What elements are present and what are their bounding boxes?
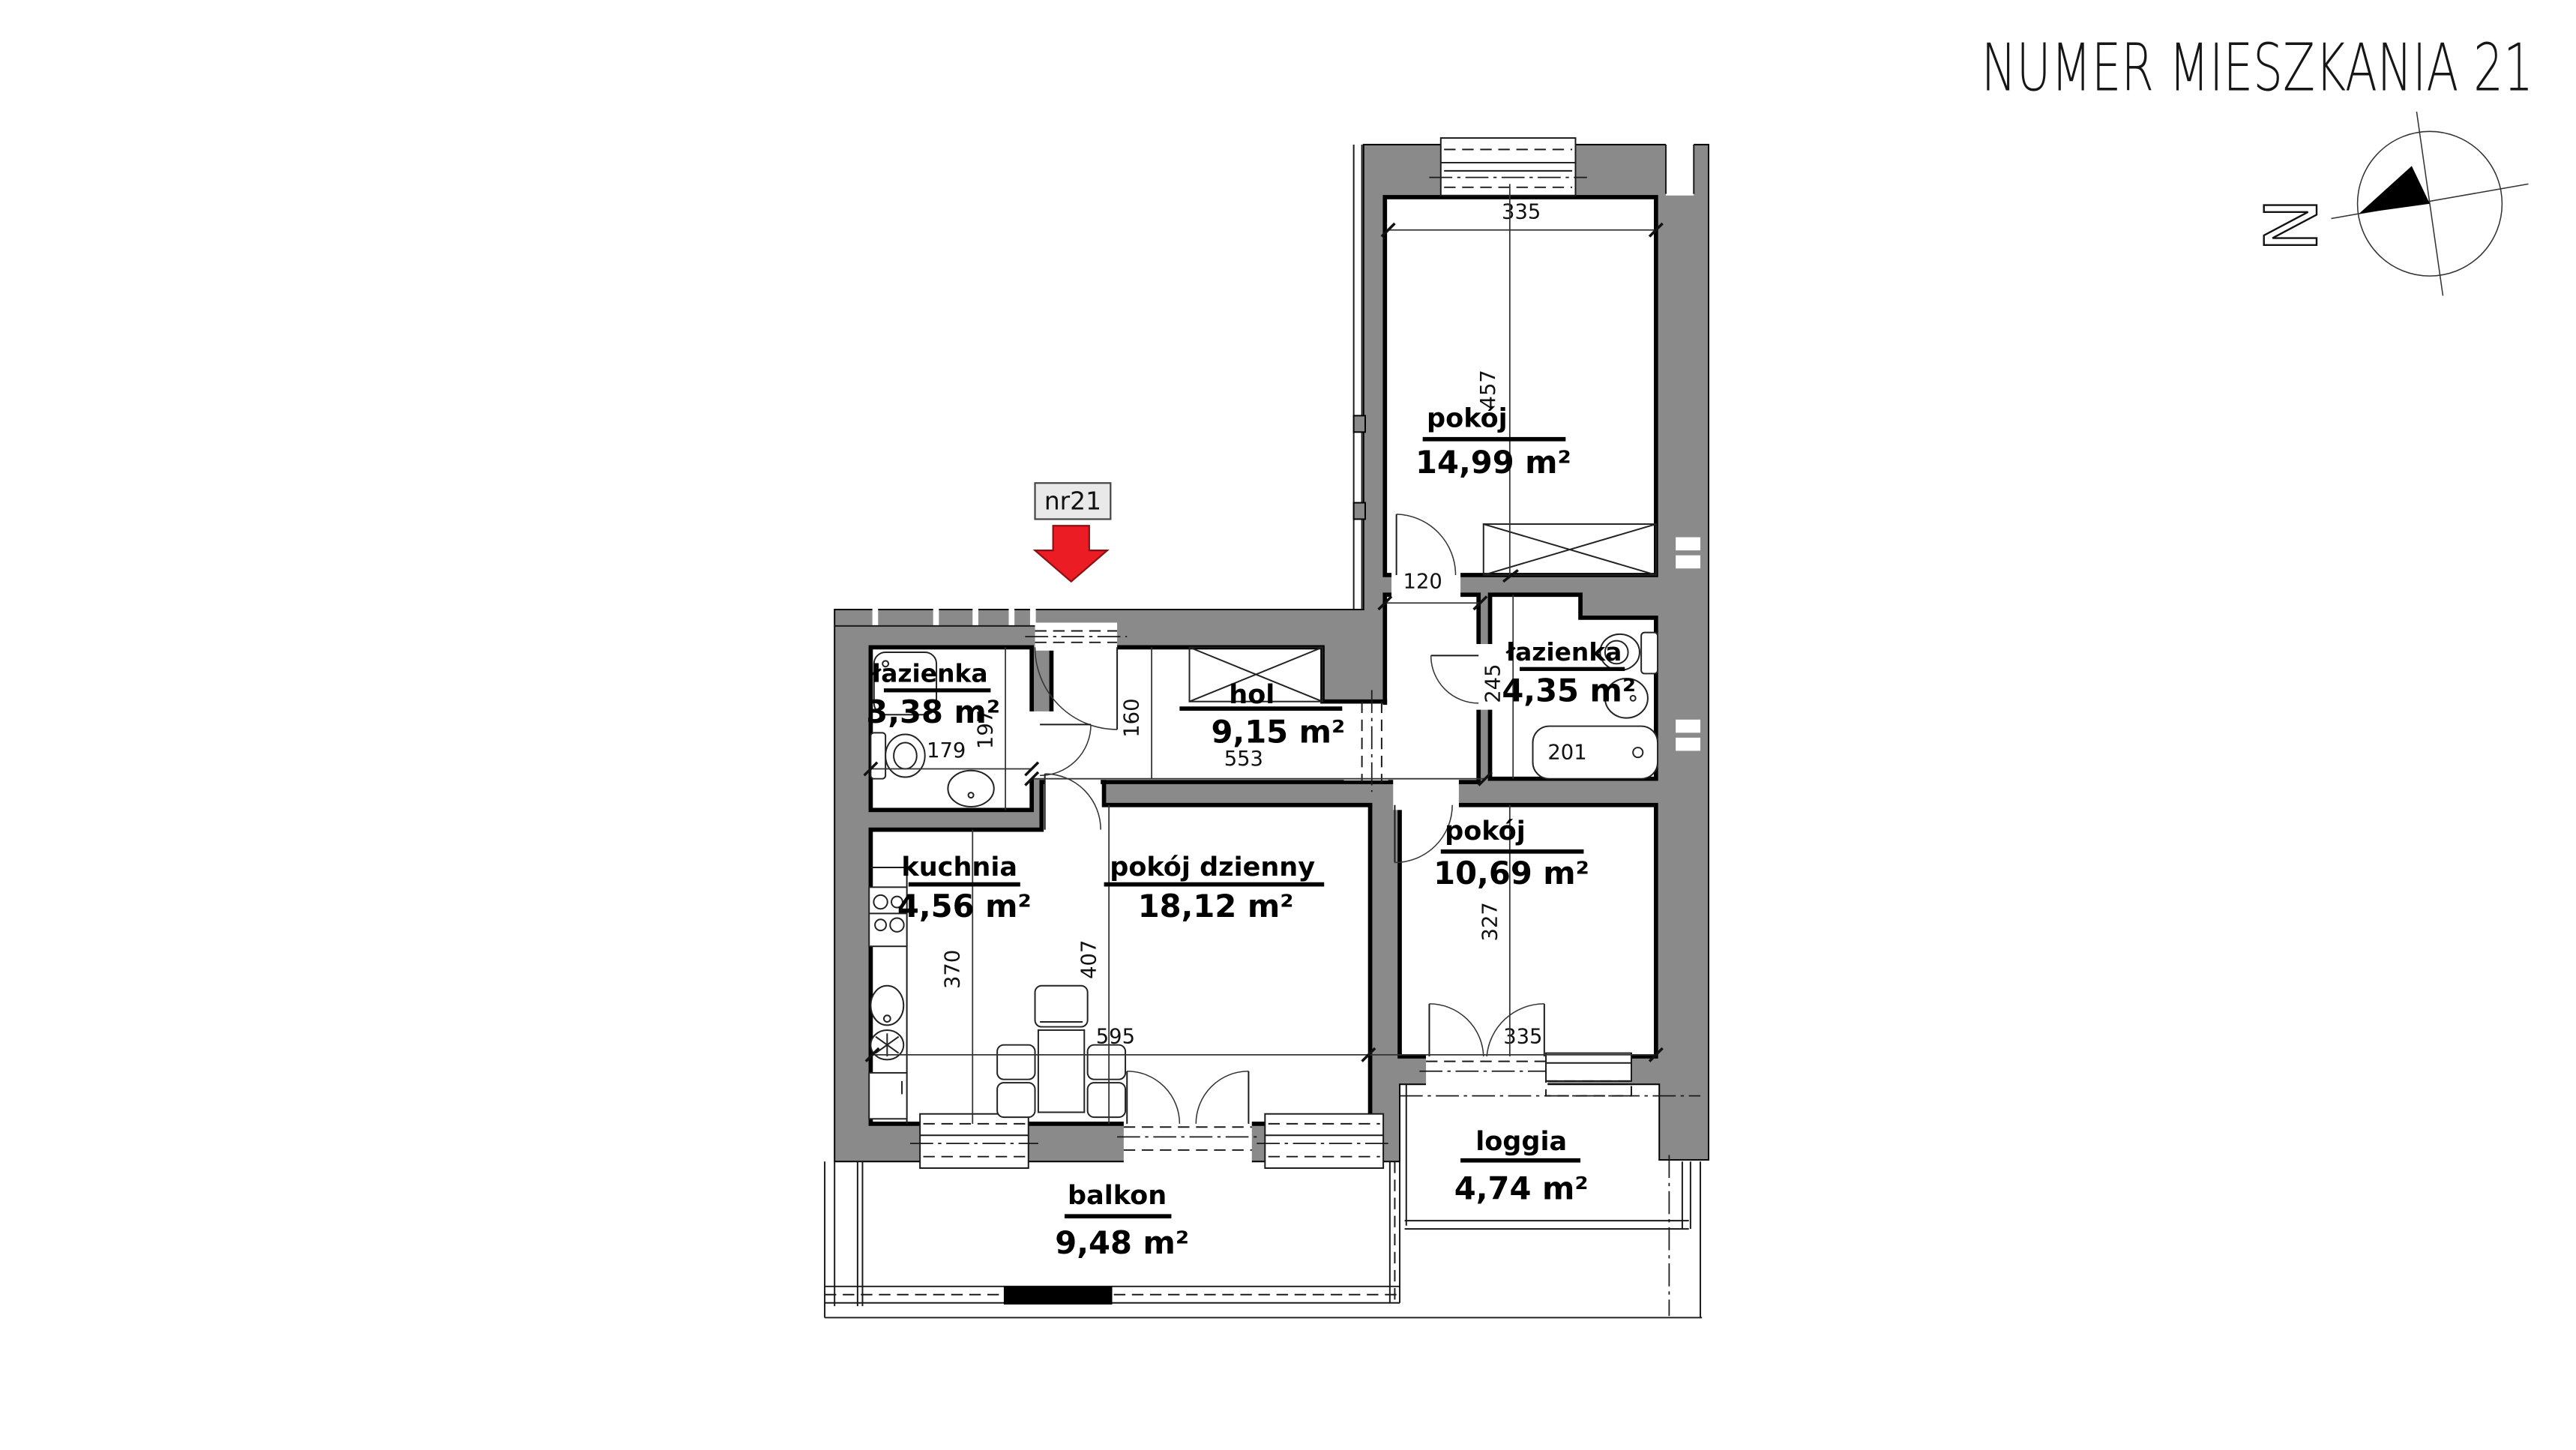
room-area: 3,38 m² xyxy=(866,694,1000,730)
room-area: 10,69 m² xyxy=(1433,855,1589,891)
balcony-rail-segment xyxy=(1004,1287,1113,1305)
dim-lazienka1-width: 179 xyxy=(927,739,966,762)
room-label-kuchnia: kuchnia 4,56 m² xyxy=(897,852,1032,924)
room-name: kuchnia xyxy=(901,852,1017,882)
room-area: 9,48 m² xyxy=(1055,1224,1189,1261)
window-kuchnia xyxy=(910,1114,1038,1168)
compass: N xyxy=(2250,112,2529,295)
cabinet-icon xyxy=(869,1073,906,1119)
room-area: 9,15 m² xyxy=(1211,713,1345,750)
dim-hol-height: 160 xyxy=(1121,698,1144,737)
chair-icon xyxy=(1035,986,1088,1027)
room-area: 4,56 m² xyxy=(897,888,1032,924)
floor-plan: 335 457 120 245 201 179 197 160 553 370 … xyxy=(0,0,2576,1450)
window-dzienny xyxy=(1257,1114,1393,1168)
sink-icon xyxy=(948,771,993,807)
window-pokoj2 xyxy=(1546,1053,1631,1096)
dim-kuchnia-height: 370 xyxy=(942,950,965,989)
chair-icon xyxy=(1088,1045,1125,1080)
chair-icon xyxy=(997,1083,1035,1117)
table-icon xyxy=(1038,1030,1084,1113)
window-pokoj1 xyxy=(1429,138,1586,196)
room-area: 4,74 m² xyxy=(1454,1170,1589,1207)
room-name: balkon xyxy=(1068,1180,1167,1211)
room-area: 14,99 m² xyxy=(1415,444,1571,481)
toilet-icon xyxy=(870,732,924,778)
entrance-arrow-icon xyxy=(1035,526,1107,582)
room-name: pokój xyxy=(1445,816,1526,846)
dim-bathtub: 201 xyxy=(1547,741,1586,764)
room-name: pokój xyxy=(1427,403,1508,434)
dim-pokoj1-width: 335 xyxy=(1502,200,1541,223)
unit-label: nr21 xyxy=(1044,486,1101,515)
chair-icon xyxy=(1088,1083,1125,1117)
page-title: NUMER MIESZKANIA 21 xyxy=(1981,30,2533,106)
room-name: loggia xyxy=(1475,1126,1567,1157)
room-label-loggia: loggia 4,74 m² xyxy=(1454,1126,1589,1207)
room-name: hol xyxy=(1229,679,1275,710)
room-name: pokój dzienny xyxy=(1110,852,1315,882)
room-name: łazienka xyxy=(871,658,987,688)
dim-corridor: 120 xyxy=(1403,570,1442,593)
room-label-lazienka1: łazienka 3,38 m² xyxy=(866,658,1000,730)
dim-pokoj2-height: 327 xyxy=(1478,902,1502,941)
unit-marker: nr21 xyxy=(1035,483,1111,581)
north-letter: N xyxy=(2250,198,2334,252)
corridor xyxy=(1385,595,1478,782)
north-needle-icon xyxy=(2359,166,2430,214)
dim-hol-width: 553 xyxy=(1224,747,1263,771)
room-label-balkon: balkon 9,48 m² xyxy=(1055,1180,1189,1261)
chair-icon xyxy=(997,1045,1035,1080)
room-name: łazienka xyxy=(1505,637,1622,667)
room-area: 4,35 m² xyxy=(1502,673,1636,709)
room-pokoj1 xyxy=(1385,197,1656,575)
room-label-lazienka2: łazienka 4,35 m² xyxy=(1502,637,1636,709)
dim-dzienny-height: 407 xyxy=(1078,940,1101,979)
page: 335 457 120 245 201 179 197 160 553 370 … xyxy=(0,0,2576,1450)
dim-kuchnia-width: 595 xyxy=(1096,1025,1135,1048)
room-area: 18,12 m² xyxy=(1138,888,1294,924)
